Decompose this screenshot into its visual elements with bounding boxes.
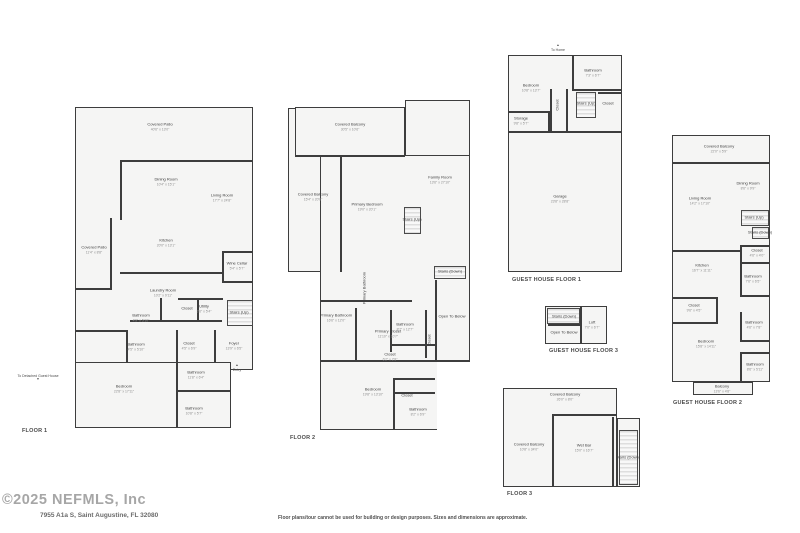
wall — [176, 362, 178, 428]
room-label: Bathroom10'8" x 5'7" — [185, 407, 202, 416]
room-name: Primary Closet — [375, 330, 401, 335]
annotation-text: To Home — [551, 48, 565, 52]
room-name: Closet — [556, 99, 561, 110]
room-dims: 3'6" x 5'4" — [197, 309, 212, 313]
room-label: Bathroom7'3" x 6'7" — [584, 69, 601, 78]
room-name: Bathroom — [745, 321, 762, 326]
room-name: Covered Balcony — [298, 193, 328, 198]
wall — [120, 160, 253, 162]
wall — [716, 297, 718, 323]
room-name: Storage — [514, 117, 529, 122]
room-name: Open To Below — [550, 331, 577, 336]
room-label: Bathroom4'5" x 5'10" — [127, 343, 144, 352]
room-name: Living Room — [211, 194, 233, 199]
wall — [214, 330, 216, 362]
room-dims: 19'0" x 20'1" — [351, 207, 382, 211]
annotation-entry: ▲Entry — [233, 364, 241, 372]
room-label: Utility3'6" x 5'4" — [197, 305, 212, 314]
room-name: Dining Room — [736, 182, 759, 187]
room-dims: 11'10" x 10'7" — [375, 334, 401, 338]
room-label: Covered Balcony26'0" x 8'0" — [550, 393, 580, 402]
wall — [740, 245, 770, 247]
room-label: Storage9'8" x 5'7" — [514, 117, 529, 126]
room-label: Stairs (Down) — [748, 231, 772, 236]
room-dims: 30'5" x 10'6" — [335, 127, 365, 131]
wall — [75, 330, 127, 332]
room-label: Stairs (Down) — [552, 315, 576, 320]
room-label: Closet9'6" x 4'5" — [687, 304, 702, 313]
room-label: Balcony13'6" x 4'8" — [714, 385, 731, 394]
room-label: Bedroom10'8" x 13'7" — [522, 84, 541, 93]
wall — [740, 352, 742, 382]
room-name: Bathroom — [127, 343, 144, 348]
room-label: Stairs (Up) — [229, 311, 248, 316]
room-name: Closet — [750, 249, 765, 254]
room-label: Primary Bathroom16'6" x 12'0" — [320, 314, 352, 323]
room-label: Living Room14'2" x 17'10" — [689, 197, 711, 206]
room-name: Bedroom — [696, 340, 716, 345]
room-label: Bathroom8'6" x 5'11" — [746, 363, 763, 372]
wall — [176, 330, 178, 362]
plan-outline-guesthouse2 — [672, 135, 770, 382]
direction-arrow-icon: ▼ — [17, 378, 59, 382]
wall — [508, 111, 550, 113]
room-label: Covered Balcony10'8" x 34'0" — [514, 443, 544, 452]
room-label: Covered Patio40'6" x 13'0" — [147, 123, 172, 132]
room-name: Stairs (Down) — [616, 456, 640, 461]
room-name: Open To Below — [438, 315, 465, 320]
room-label: Closet — [401, 394, 412, 399]
room-label: Closet4'6" x 4'0" — [750, 249, 765, 258]
room-label: Closet — [181, 307, 192, 312]
room-dims: 10'8" x 5'7" — [185, 411, 202, 415]
room-dims: 16'7" x 11'11" — [692, 268, 712, 272]
room-name: Stairs (Down) — [438, 270, 462, 275]
floorplan-sheet: ©2025 NEFMLS, Inc 7955 A1a S, Saint Augu… — [0, 0, 800, 533]
wall — [160, 298, 162, 322]
room-dims: 22'0" x 5'9" — [704, 149, 734, 153]
room-name: Closet — [182, 342, 197, 347]
wall — [435, 360, 470, 362]
room-label: Living Room17'7" x 24'8" — [211, 194, 233, 203]
room-dims: 20'0" x 13'1" — [157, 243, 176, 247]
wall — [393, 378, 395, 430]
room-label: Stairs (Down) — [616, 456, 640, 461]
room-name: Bathroom — [185, 407, 202, 412]
room-dims: 8'6" x 9'9" — [736, 186, 759, 190]
room-dims: 10'8" x 34'0" — [514, 447, 544, 451]
disclaimer-text: Floor plans/tour cannot be used for buil… — [278, 515, 527, 521]
room-name: Covered Balcony — [704, 145, 734, 150]
wall — [740, 262, 742, 295]
room-name: Stairs (Up) — [402, 218, 421, 223]
wall — [508, 131, 622, 133]
room-label: Bedroom19'8" x 13'10" — [363, 388, 383, 397]
room-dims: 15'8" x 14'11" — [696, 344, 716, 348]
room-label: Stairs (Down) — [438, 270, 462, 275]
room-dims: 23'8" x 28'8" — [551, 199, 570, 203]
room-dims: 10'2" x 9'11" — [150, 293, 176, 297]
wall — [355, 308, 357, 362]
room-dims: 8'6" x 5'11" — [746, 367, 763, 371]
room-label: Open To Below — [438, 315, 465, 320]
room-label: Open To Below — [550, 331, 577, 336]
room-dims: 7'0" x 6'7" — [585, 325, 600, 329]
room-dims: 15'4" x 20'8" — [298, 197, 328, 201]
room-dims: 10'8" x 13'7" — [522, 88, 541, 92]
room-label: Bathroom11'8" x 6'4" — [187, 371, 204, 380]
room-name: Bathroom — [132, 314, 149, 319]
room-name: Bedroom — [114, 385, 134, 390]
room-dims: 17'7" x 24'8" — [211, 198, 233, 202]
room-dims: 5'4" x 5'7" — [227, 266, 248, 270]
room-name: Bathroom — [187, 371, 204, 376]
wall — [612, 417, 614, 487]
room-label: Bathroom7'6" x 6'5" — [744, 275, 761, 284]
room-name: Primary Bedroom — [351, 203, 382, 208]
room-dims: 4'9" x 5'10" — [132, 318, 149, 322]
room-name: Stairs (Down) — [552, 315, 576, 320]
room-name: Closet — [687, 304, 702, 309]
room-name: Family Room — [428, 176, 452, 181]
room-dims: 13'6" x 4'8" — [714, 389, 731, 393]
room-dims: 16'6" x 12'0" — [320, 318, 352, 322]
wall — [598, 92, 622, 94]
room-dims: 7'3" x 6'7" — [584, 73, 601, 77]
room-dims: 15'0" x 16'7" — [575, 448, 594, 452]
room-name: Bathroom — [744, 275, 761, 280]
room-dims: 9'6" x 4'5" — [687, 308, 702, 312]
room-name: Balcony — [714, 385, 731, 390]
wall — [222, 251, 253, 253]
wall — [222, 251, 224, 282]
room-label: Covered Patio11'4" x 8'8" — [81, 246, 106, 255]
room-name: Bathroom — [746, 363, 763, 368]
wall — [320, 360, 436, 362]
wall — [435, 280, 437, 362]
wall — [672, 162, 770, 164]
wall — [295, 155, 405, 157]
room-name: Covered Balcony — [335, 123, 365, 128]
room-label: Bathroom4'6" x 7'8" — [745, 321, 762, 330]
room-dims: 22'8" x 17'11" — [114, 389, 134, 393]
wall — [566, 89, 568, 131]
plan-outline-floor2 — [295, 107, 405, 157]
room-label: Closet6'2" x 2'8" — [383, 353, 398, 362]
room-label: Stairs (Up) — [576, 102, 595, 107]
room-name: Stairs (Up) — [229, 311, 248, 316]
room-name: Covered Patio — [81, 246, 106, 251]
wall — [176, 390, 231, 392]
room-name: Laundry Room — [150, 289, 176, 294]
room-label: Bathroom4'9" x 5'10" — [132, 314, 149, 323]
room-name: Primary Bathroom — [363, 272, 368, 304]
room-dims: 11'4" x 8'8" — [81, 250, 106, 254]
wall — [552, 414, 554, 487]
wall — [740, 245, 742, 262]
room-label: Closet — [556, 99, 561, 110]
room-dims: 10'4" x 15'1" — [154, 182, 177, 186]
plan-outline-floor3 — [503, 388, 617, 487]
room-dims: 19'8" x 13'10" — [363, 392, 383, 396]
plan-outline-floor1 — [75, 362, 231, 428]
watermark-text: ©2025 NEFMLS, Inc — [2, 492, 146, 508]
room-name: Kitchen — [157, 239, 176, 244]
wall — [548, 111, 550, 131]
wall — [75, 288, 112, 290]
property-address: 7955 A1a S, Saint Augustine, FL 32080 — [40, 512, 158, 519]
room-label: Dining Room10'4" x 15'1" — [154, 178, 177, 187]
room-name: Dining Room — [154, 178, 177, 183]
wall — [740, 312, 742, 340]
room-label: Kitchen20'0" x 13'1" — [157, 239, 176, 248]
room-name: Bedroom — [363, 388, 383, 393]
room-dims: 26'0" x 8'0" — [550, 397, 580, 401]
room-name: Bedroom — [522, 84, 541, 89]
wall — [548, 324, 581, 326]
room-label: Closet4'5" x 6'9" — [182, 342, 197, 351]
room-dims: 9'8" x 5'7" — [514, 121, 529, 125]
wall — [222, 281, 253, 283]
room-label: Family Room13'6" x 27'10" — [428, 176, 452, 185]
wall — [740, 352, 770, 354]
floor-label-guesthouse1: GUEST HOUSE FLOOR 1 — [512, 277, 581, 283]
room-dims: 13'9" x 6'5" — [226, 346, 243, 350]
room-name: Wet Bar — [575, 444, 594, 449]
room-name: Closet — [383, 353, 398, 358]
room-name: Covered Balcony — [514, 443, 544, 448]
annotation-to-detached: To Detached Guest House▼ — [17, 374, 59, 382]
annotation-text: Entry — [233, 368, 241, 372]
floor-label-floor3: FLOOR 3 — [507, 491, 532, 497]
room-dims: 6'2" x 2'8" — [383, 357, 398, 361]
room-name: Covered Balcony — [550, 393, 580, 398]
wall — [672, 322, 718, 324]
room-label: Closet — [602, 102, 613, 107]
room-dims: 11'8" x 6'4" — [187, 375, 204, 379]
room-name: Primary Bathroom — [320, 314, 352, 319]
floor-label-guesthouse2: GUEST HOUSE FLOOR 2 — [673, 400, 742, 406]
wall — [740, 295, 770, 297]
room-name: Stairs (Down) — [748, 231, 772, 236]
wall — [740, 340, 770, 342]
wall — [120, 272, 223, 274]
room-name: Stairs (Up) — [744, 216, 763, 221]
room-label: Loft7'0" x 6'7" — [585, 321, 600, 330]
room-label: Covered Balcony22'0" x 5'9" — [704, 145, 734, 154]
room-label: Kitchen16'7" x 11'11" — [692, 264, 712, 273]
wall — [340, 155, 342, 272]
room-label: Foyer13'9" x 6'5" — [226, 342, 243, 351]
room-name: Closet — [428, 334, 433, 345]
floor-label-floor2: FLOOR 2 — [290, 435, 315, 441]
room-label: Stairs (Up) — [744, 216, 763, 221]
room-dims: 4'6" x 7'8" — [745, 325, 762, 329]
room-name: Closet — [181, 307, 192, 312]
wall — [550, 89, 552, 131]
room-name: Closet — [401, 394, 412, 399]
room-label: Primary Bathroom — [363, 272, 368, 304]
room-label: Bedroom15'8" x 14'11" — [696, 340, 716, 349]
room-dims: 4'6" x 4'0" — [750, 253, 765, 257]
room-label: Stairs (Up) — [402, 218, 421, 223]
wall — [110, 218, 112, 290]
room-label: Bathroom8'2" x 6'9" — [409, 408, 426, 417]
wall — [672, 250, 742, 252]
wall — [552, 414, 617, 416]
room-label: Laundry Room10'2" x 9'11" — [150, 289, 176, 298]
wall — [572, 55, 574, 91]
room-dims: 4'5" x 5'10" — [127, 347, 144, 351]
room-label: Garage23'8" x 28'8" — [551, 195, 570, 204]
room-label: Primary Closet11'10" x 10'7" — [375, 330, 401, 339]
room-dims: 40'6" x 13'0" — [147, 127, 172, 131]
room-name: Closet — [602, 102, 613, 107]
room-label: Wet Bar15'0" x 16'7" — [575, 444, 594, 453]
room-label: Wine Cellar5'4" x 5'7" — [227, 262, 248, 271]
wall — [740, 262, 770, 264]
wall — [178, 298, 223, 300]
room-name: Living Room — [689, 197, 711, 202]
wall — [393, 392, 435, 394]
room-name: Bathroom — [584, 69, 601, 74]
room-label: Primary Bedroom19'0" x 20'1" — [351, 203, 382, 212]
annotation-to-home: ▲To Home — [551, 44, 565, 52]
wall — [672, 297, 718, 299]
room-name: Bathroom — [409, 408, 426, 413]
room-name: Bathroom — [396, 323, 413, 328]
room-name: Covered Patio — [147, 123, 172, 128]
room-name: Stairs (Up) — [576, 102, 595, 107]
wall — [572, 89, 622, 91]
room-label: Bedroom22'8" x 17'11" — [114, 385, 134, 394]
floor-label-floor1: FLOOR 1 — [22, 428, 47, 434]
room-label: Covered Balcony30'5" x 10'6" — [335, 123, 365, 132]
room-name: Garage — [551, 195, 570, 200]
wall — [393, 378, 435, 380]
floor-label-guesthouse3: GUEST HOUSE FLOOR 3 — [549, 348, 618, 354]
room-dims: 4'5" x 6'9" — [182, 346, 197, 350]
room-dims: 8'2" x 6'9" — [409, 412, 426, 416]
room-dims: 14'2" x 17'10" — [689, 201, 711, 205]
room-label: Closet — [428, 334, 433, 345]
room-dims: 13'6" x 27'10" — [428, 180, 452, 184]
room-name: Wine Cellar — [227, 262, 248, 267]
wall — [120, 160, 122, 220]
room-label: Dining Room8'6" x 9'9" — [736, 182, 759, 191]
room-label: Covered Balcony15'4" x 20'8" — [298, 193, 328, 202]
room-dims: 7'6" x 6'5" — [744, 279, 761, 283]
outline-patch — [437, 362, 475, 432]
